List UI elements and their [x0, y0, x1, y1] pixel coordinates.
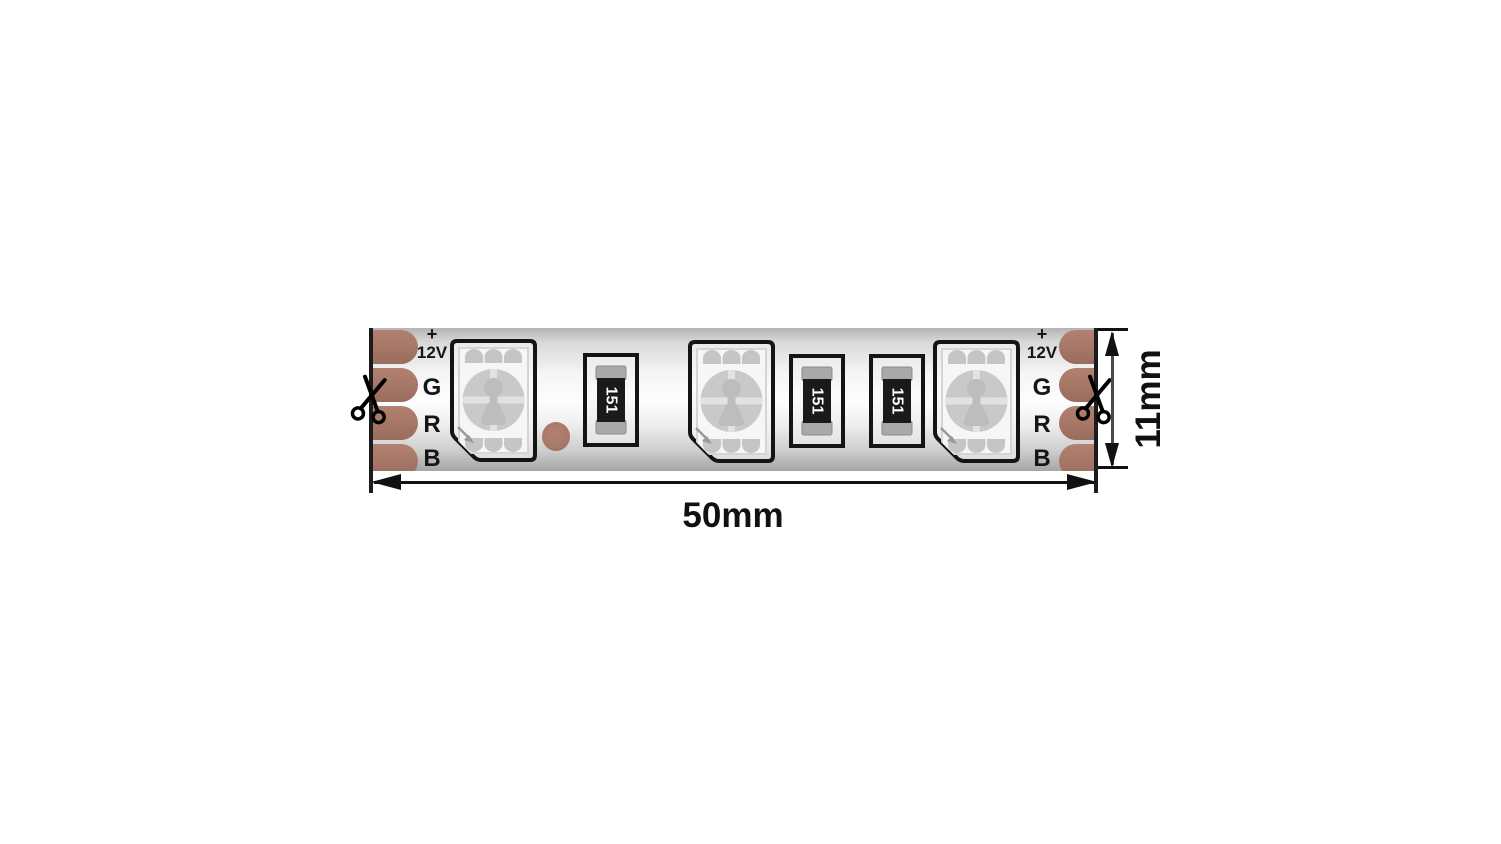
height-dimension-label: 11mm — [1129, 349, 1169, 448]
copper-test-point — [542, 422, 570, 451]
dimension-arrow-left-icon — [371, 474, 401, 490]
plus-label: + — [1019, 328, 1065, 343]
dimension-arrow-down-icon — [1105, 443, 1119, 468]
power-label: 12V — [409, 344, 455, 362]
smd-led-package-2 — [688, 340, 775, 463]
red-channel-label: R — [1019, 412, 1065, 438]
width-dimension-label: 50mm — [633, 496, 833, 536]
red-channel-label: R — [409, 412, 455, 438]
smd-resistor-3 — [869, 354, 925, 448]
smd-led-package-3 — [933, 340, 1020, 463]
power-label: 12V — [1019, 344, 1065, 362]
smd-led-package-1 — [450, 339, 537, 462]
dimension-arrow-right-icon — [1067, 474, 1097, 490]
led-strip-segment: + 12V G R B + 12V G R B — [371, 328, 1097, 471]
green-channel-label: G — [409, 375, 455, 401]
width-dimension-line — [374, 481, 1094, 484]
plus-label: + — [409, 328, 455, 343]
blue-channel-label: B — [1019, 446, 1065, 471]
smd-resistor-2 — [789, 354, 845, 448]
blue-channel-label: B — [409, 446, 455, 471]
led-strip-technical-drawing: + 12V G R B + 12V G R B 50mm — [0, 0, 1501, 844]
dimension-arrow-up-icon — [1105, 331, 1119, 356]
smd-resistor-1 — [583, 353, 639, 447]
green-channel-label: G — [1019, 375, 1065, 401]
